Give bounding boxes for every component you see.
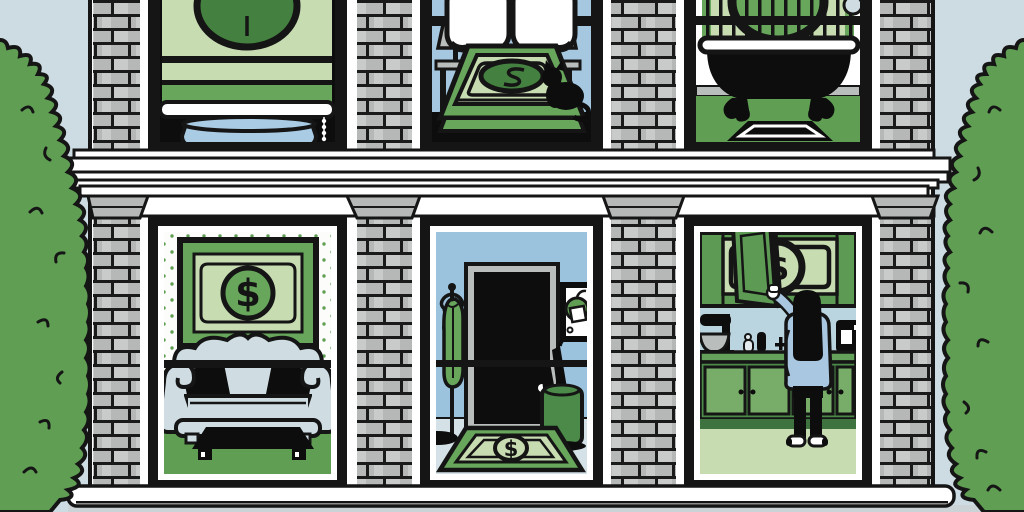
curtain-rod <box>696 16 860 25</box>
brick-column <box>880 0 931 152</box>
room-kitchen: $ <box>684 216 872 490</box>
brick-column <box>93 0 140 152</box>
dollar-glyph-art: $ <box>235 272 261 315</box>
kitchen-floor <box>700 429 856 474</box>
base-cabinets <box>700 362 856 429</box>
brick-column <box>611 0 676 152</box>
woman-hand <box>767 285 779 299</box>
brick-column <box>611 218 676 486</box>
dollar-doormat: $ <box>440 428 582 470</box>
room-hallway: $ <box>418 216 603 490</box>
shower-hook <box>844 0 862 14</box>
framed-dollar-art: $ <box>180 240 316 346</box>
room-bedroom <box>420 0 603 152</box>
window-lintels <box>88 196 938 218</box>
illustration-money-house: $ <box>0 0 1024 512</box>
brick-column <box>357 218 412 486</box>
cornice <box>58 150 950 196</box>
room-living: $ <box>148 216 347 490</box>
brick-column <box>93 218 140 486</box>
scene-canvas: $ <box>0 0 1024 512</box>
dollar-glyph-doormat: $ <box>504 437 519 461</box>
brick-column <box>357 0 412 152</box>
bottom-ledge <box>68 486 1024 512</box>
room-bathroom <box>684 0 872 152</box>
brick-column <box>880 218 931 486</box>
room-blind-window <box>148 0 347 152</box>
window-mullion <box>436 360 587 367</box>
woman-hair <box>793 290 823 361</box>
window-mullion <box>164 360 331 368</box>
camelback-sofa <box>160 334 337 443</box>
